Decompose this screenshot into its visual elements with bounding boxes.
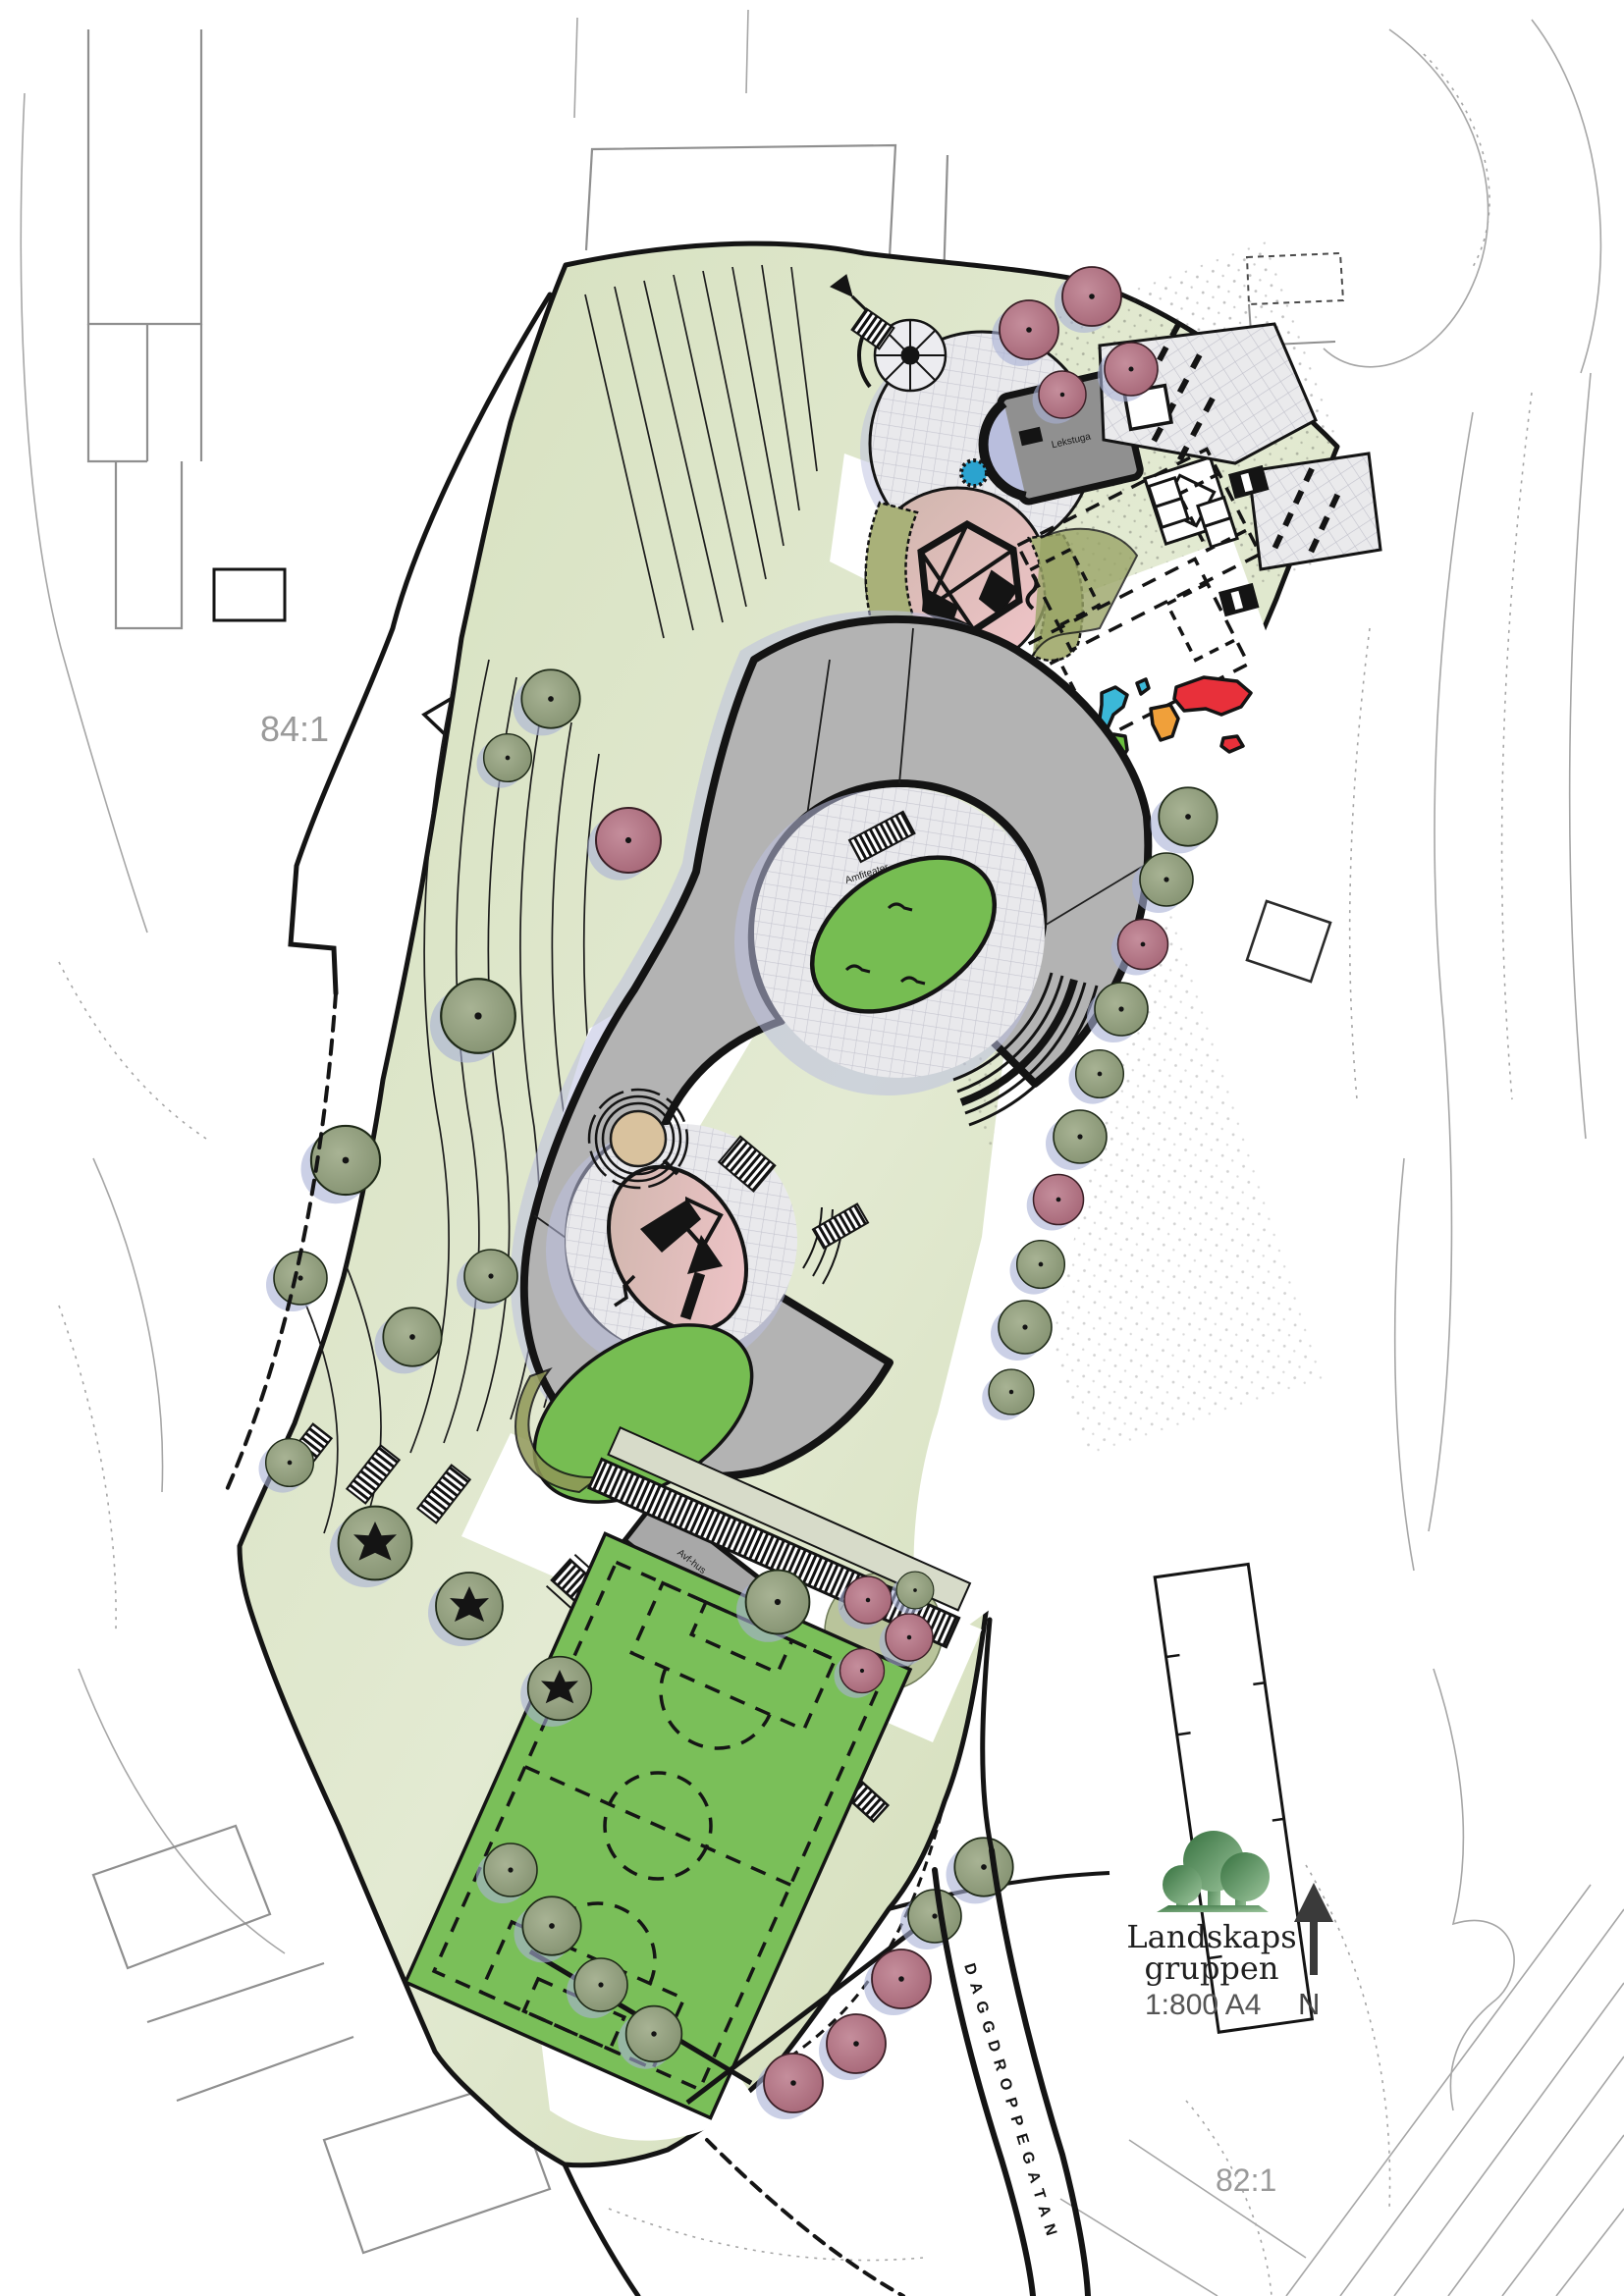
site-plan-drawing: 84:1 82:1: [0, 0, 1624, 2296]
title-block: Landskaps gruppen 1:800 A4 N: [1126, 1831, 1333, 2021]
site-plan-canvas: 84:1 82:1: [0, 0, 1624, 2296]
bike-parking-area-2: [1249, 454, 1380, 569]
logo-text-line2: gruppen: [1145, 1949, 1279, 1987]
parcel-label-right: 82:1: [1216, 2163, 1276, 2198]
water-play-point: [961, 460, 987, 486]
parcel-label-left: 84:1: [260, 709, 329, 749]
north-label: N: [1298, 1987, 1320, 2021]
sandpit: [611, 1111, 666, 1166]
tree: [266, 1252, 327, 1311]
tree: [900, 1890, 961, 1949]
scale-text: 1:800 A4: [1145, 1989, 1261, 2021]
tree: [947, 1838, 1013, 1903]
neighbor-building-small: [214, 569, 285, 620]
